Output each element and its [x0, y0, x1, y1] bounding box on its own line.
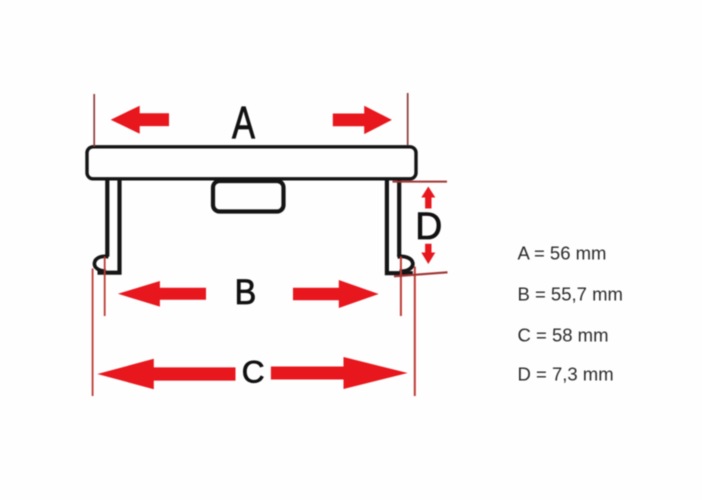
svg-text:D: D — [415, 206, 442, 248]
svg-text:A = 56 mm: A = 56 mm — [518, 243, 607, 264]
svg-text:C: C — [242, 353, 265, 389]
svg-text:A: A — [232, 97, 255, 148]
svg-text:C = 58 mm: C = 58 mm — [518, 325, 609, 346]
svg-text:D = 7,3 mm: D = 7,3 mm — [518, 364, 614, 385]
svg-text:B: B — [235, 273, 257, 312]
svg-text:B = 55,7 mm: B = 55,7 mm — [518, 284, 623, 305]
